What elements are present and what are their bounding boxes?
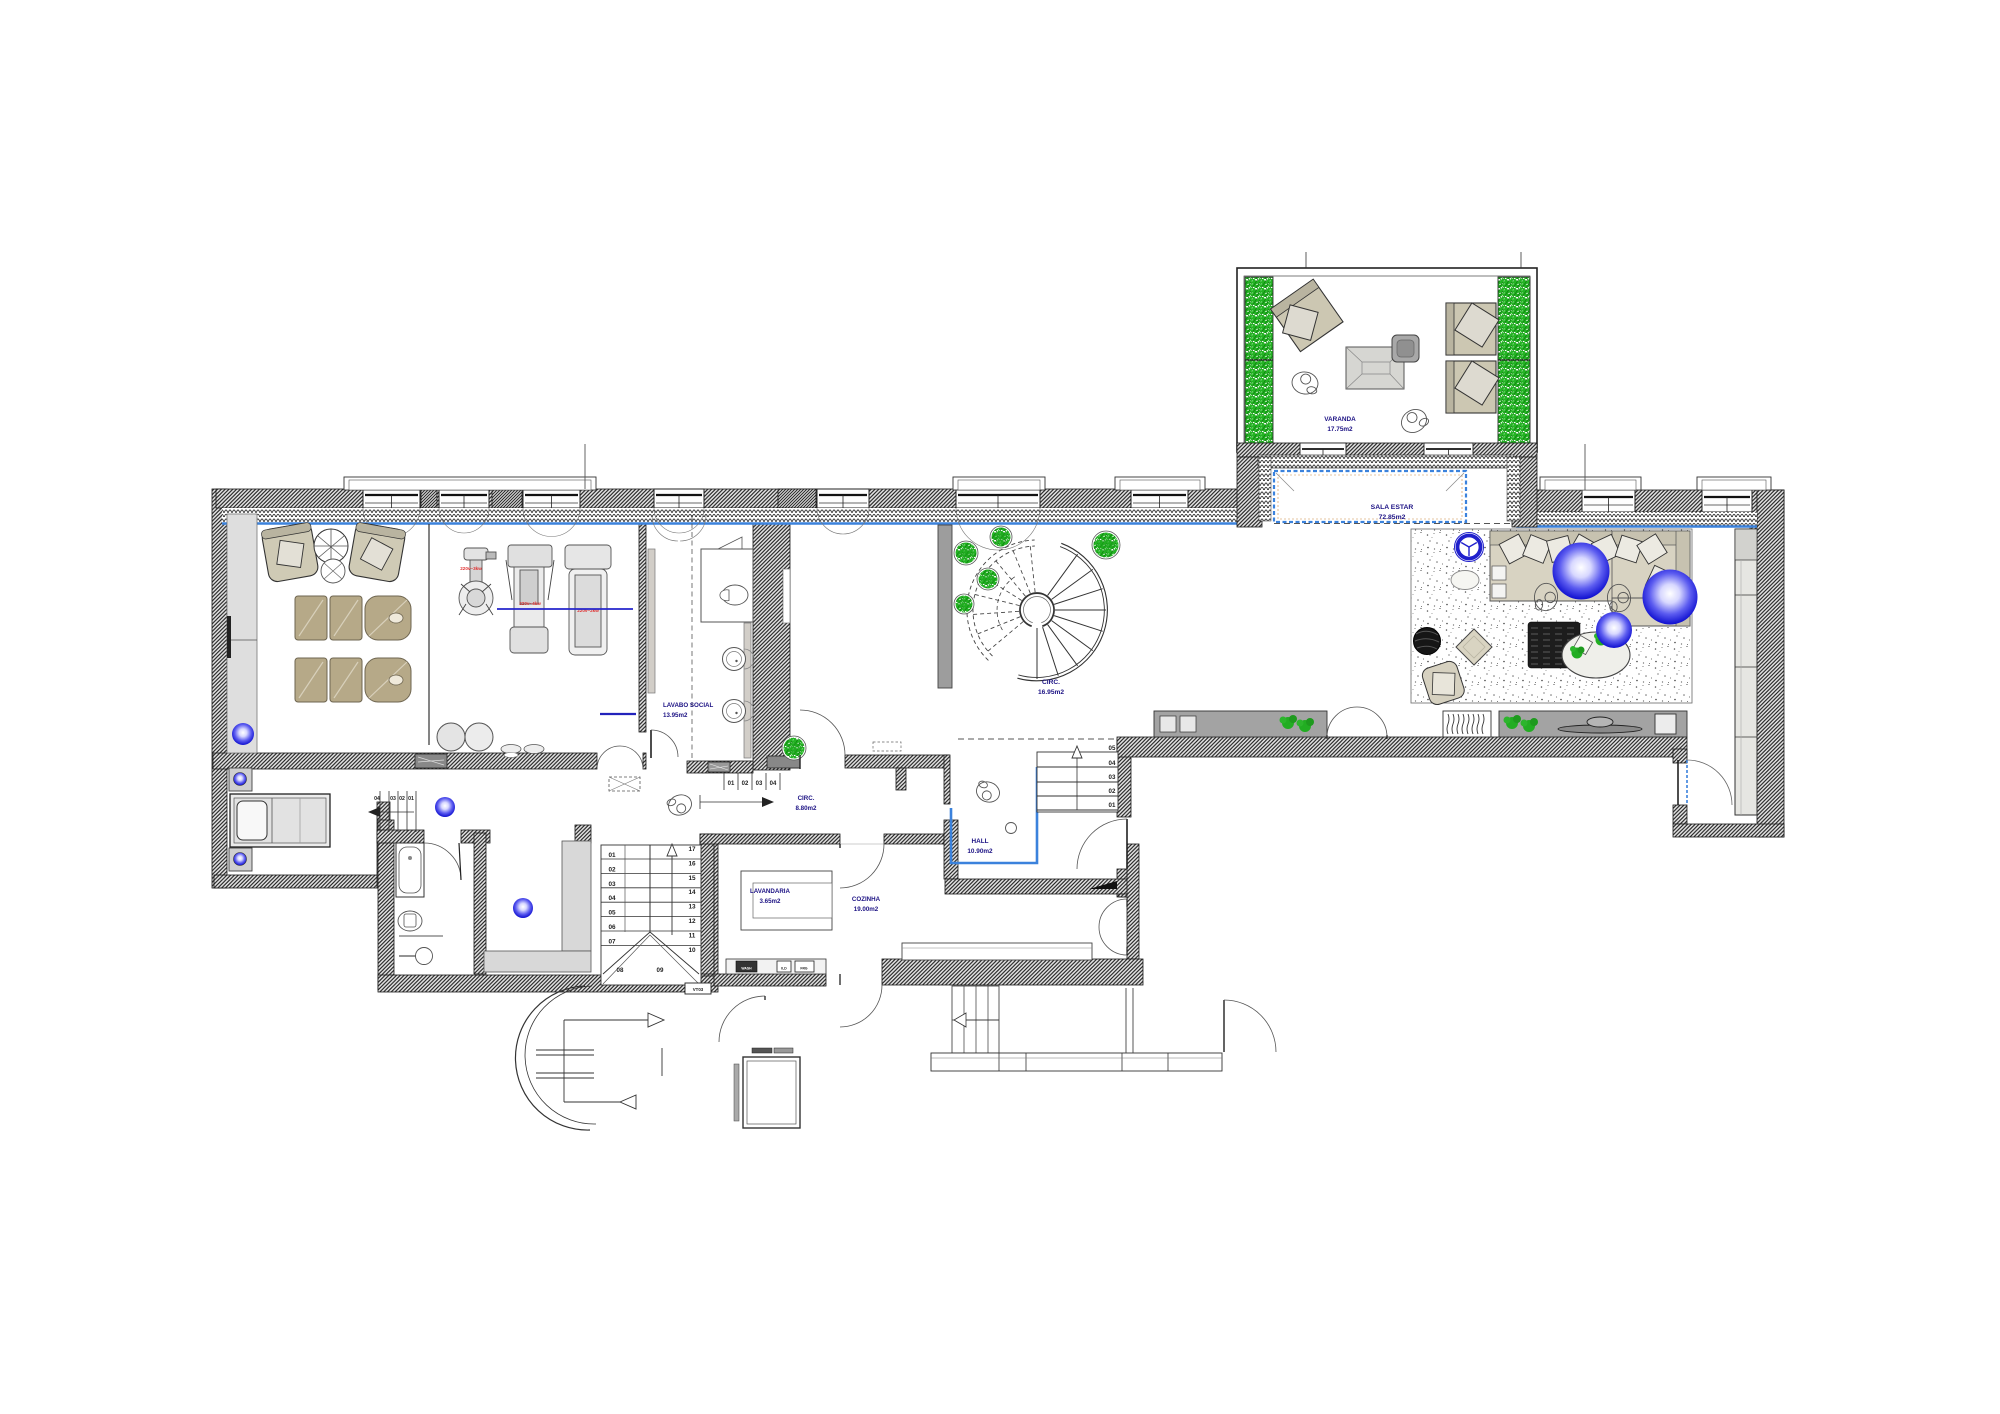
svg-text:HALL: HALL — [971, 838, 988, 845]
svg-text:WASH: WASH — [741, 967, 752, 971]
svg-text:8.80m2: 8.80m2 — [796, 805, 818, 812]
svg-text:16: 16 — [688, 860, 696, 867]
svg-text:04: 04 — [1109, 760, 1116, 767]
svg-text:01: 01 — [608, 852, 616, 859]
svg-text:13: 13 — [688, 904, 696, 911]
svg-text:01: 01 — [728, 781, 735, 787]
svg-text:220v~4kw: 220v~4kw — [519, 601, 541, 606]
svg-text:03: 03 — [608, 881, 616, 888]
svg-text:07: 07 — [608, 938, 616, 945]
svg-text:COZINHA: COZINHA — [852, 896, 881, 903]
svg-text:CIRC.: CIRC. — [1042, 679, 1060, 686]
svg-text:72.85m2: 72.85m2 — [1379, 514, 1406, 521]
svg-text:10.90m2: 10.90m2 — [967, 848, 993, 855]
svg-text:17: 17 — [688, 846, 696, 853]
svg-text:15: 15 — [688, 875, 696, 882]
svg-text:01: 01 — [1109, 802, 1116, 809]
svg-text:SALA ESTAR: SALA ESTAR — [1371, 504, 1414, 511]
svg-text:CIRC.: CIRC. — [798, 795, 815, 802]
svg-text:02: 02 — [742, 781, 749, 787]
svg-text:05: 05 — [1109, 745, 1116, 752]
svg-text:FRG: FRG — [800, 967, 808, 971]
svg-text:05: 05 — [608, 910, 616, 917]
svg-text:19.00m2: 19.00m2 — [854, 906, 879, 913]
svg-text:02: 02 — [399, 796, 405, 802]
svg-text:06: 06 — [608, 924, 616, 931]
svg-text:VARANDA: VARANDA — [1324, 416, 1356, 423]
svg-text:13.95m2: 13.95m2 — [663, 712, 688, 719]
svg-text:03: 03 — [1109, 774, 1116, 781]
svg-text:04: 04 — [608, 895, 616, 902]
svg-text:220v~3kw: 220v~3kw — [460, 566, 482, 571]
svg-text:16.95m2: 16.95m2 — [1038, 689, 1064, 696]
svg-text:02: 02 — [608, 866, 616, 873]
svg-text:12: 12 — [688, 918, 696, 925]
svg-text:04: 04 — [770, 781, 777, 787]
svg-text:09: 09 — [657, 967, 664, 974]
svg-text:03: 03 — [756, 781, 763, 787]
svg-text:11: 11 — [689, 932, 696, 939]
svg-text:LAVABO SOCIAL: LAVABO SOCIAL — [663, 702, 714, 709]
svg-text:03: 03 — [390, 796, 396, 802]
svg-text:ILD: ILD — [781, 967, 787, 971]
svg-text:LAVANDARIA: LAVANDARIA — [750, 888, 791, 895]
svg-text:10: 10 — [688, 947, 696, 954]
svg-text:17.75m2: 17.75m2 — [1327, 426, 1353, 433]
svg-text:02: 02 — [1109, 788, 1116, 795]
svg-text:04: 04 — [374, 796, 380, 802]
svg-text:VT03: VT03 — [693, 987, 704, 992]
svg-text:3.65m2: 3.65m2 — [760, 898, 782, 905]
svg-text:14: 14 — [688, 889, 696, 896]
svg-text:01: 01 — [408, 796, 414, 802]
svg-text:08: 08 — [617, 967, 624, 974]
